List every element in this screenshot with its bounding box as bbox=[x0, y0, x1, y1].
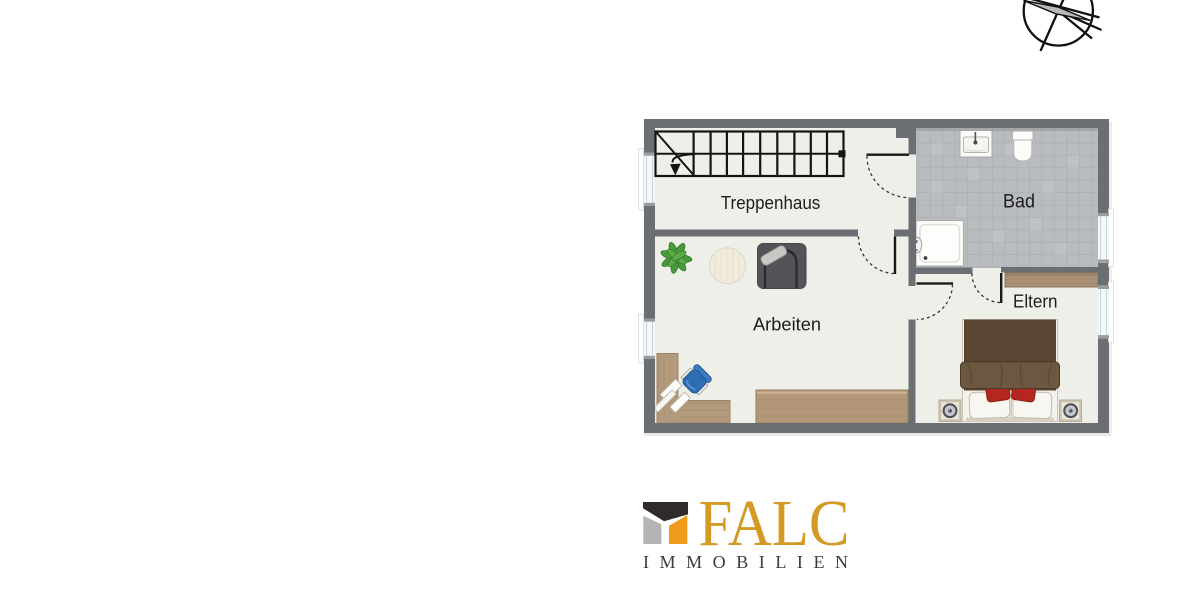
svg-text:Treppenhaus: Treppenhaus bbox=[721, 192, 821, 213]
svg-text:Arbeiten: Arbeiten bbox=[753, 313, 821, 334]
svg-text:Bad: Bad bbox=[1003, 192, 1035, 213]
svg-text:IMMOBILIEN: IMMOBILIEN bbox=[643, 552, 848, 572]
svg-text:FALC: FALC bbox=[699, 487, 850, 560]
svg-text:Eltern: Eltern bbox=[1013, 291, 1058, 312]
